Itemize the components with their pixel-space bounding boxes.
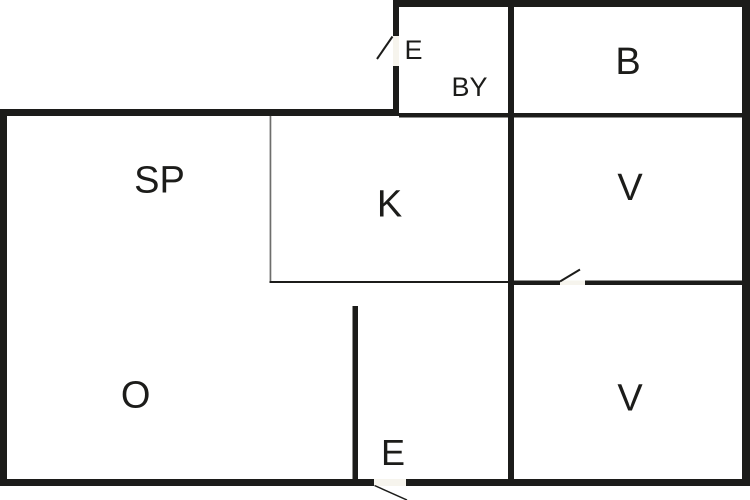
svg-text:O: O xyxy=(121,375,151,417)
svg-text:E: E xyxy=(381,432,405,473)
svg-text:K: K xyxy=(377,184,402,226)
svg-text:E: E xyxy=(404,35,422,65)
svg-text:V: V xyxy=(617,378,643,420)
svg-text:V: V xyxy=(617,167,643,209)
svg-text:B: B xyxy=(615,41,640,83)
svg-text:SP: SP xyxy=(134,160,185,202)
svg-text:BY: BY xyxy=(451,72,487,102)
